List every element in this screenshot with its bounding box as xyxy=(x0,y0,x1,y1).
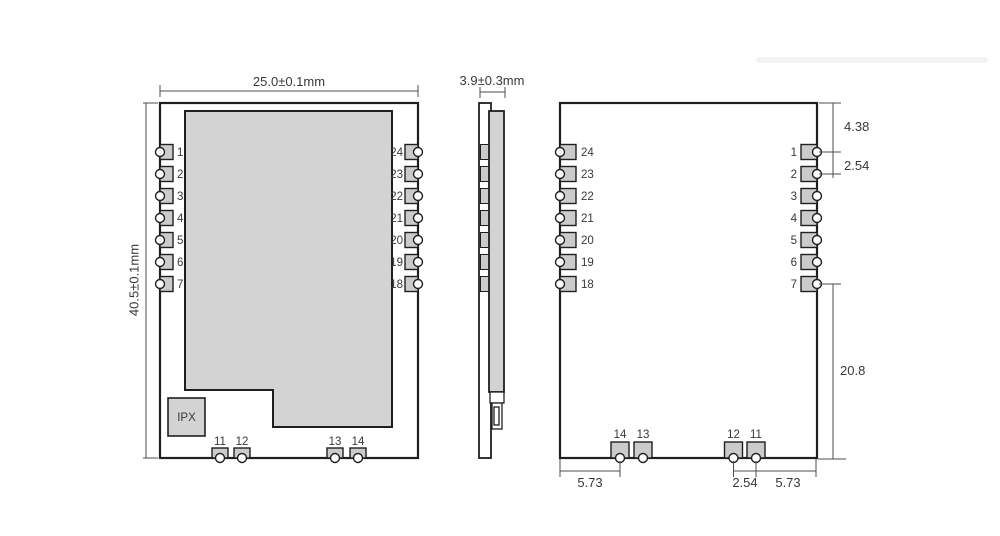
pin-label: 7 xyxy=(177,279,183,291)
pin-label: 6 xyxy=(177,257,183,269)
front-view: IPX 1234567 24232221201918 11121314 25.0… xyxy=(127,74,423,463)
module-dimension-drawing: IPX 1234567 24232221201918 11121314 25.0… xyxy=(0,0,1000,536)
front-height-dim-line xyxy=(143,103,158,458)
pin-label: 22 xyxy=(390,191,403,203)
side-thickness-dim-label: 3.9±0.3mm xyxy=(460,73,525,88)
pin-label: 5 xyxy=(177,235,183,247)
castellation-notch xyxy=(556,170,565,179)
castellation-notch xyxy=(156,148,165,157)
front-height-dim-label: 40.5±0.1mm xyxy=(127,244,142,316)
pin-label: 12 xyxy=(727,429,740,441)
pin-label: 20 xyxy=(390,235,403,247)
back-pin-pitch-dim-label: 2.54 xyxy=(844,158,869,173)
pin-label: 14 xyxy=(614,429,627,441)
pin-label: 3 xyxy=(177,191,183,203)
pin-label: 1 xyxy=(177,147,183,159)
castellation-notch xyxy=(813,192,822,201)
back-top-right-dim-lines xyxy=(819,103,841,178)
pin-label: 2 xyxy=(177,169,183,181)
castellation-notch xyxy=(556,148,565,157)
castellation-notch xyxy=(813,258,822,267)
castellation-notch xyxy=(354,454,363,463)
pin-label: 23 xyxy=(390,169,403,181)
castellation-notch xyxy=(813,236,822,245)
pin-label: 5 xyxy=(791,235,797,247)
castellation-notch xyxy=(156,280,165,289)
castellation-notch xyxy=(238,454,247,463)
pin-label: 2 xyxy=(791,169,797,181)
pin-label: 24 xyxy=(390,147,403,159)
castellation-notch xyxy=(414,280,423,289)
castellation-notch xyxy=(556,258,565,267)
castellation-notch xyxy=(556,236,565,245)
castellation-notch xyxy=(156,258,165,267)
pin-label: 20 xyxy=(581,235,594,247)
pin-label: 19 xyxy=(581,257,594,269)
castellation-notch xyxy=(556,214,565,223)
pin-label: 11 xyxy=(750,429,762,441)
pin-label: 6 xyxy=(791,257,797,269)
pin-label: 7 xyxy=(791,279,797,291)
castellation-notch xyxy=(813,214,822,223)
pin-label: 4 xyxy=(177,213,184,225)
pin-label: 13 xyxy=(329,436,342,448)
side-thickness-dim-line xyxy=(480,87,505,98)
castellation-notch xyxy=(331,454,340,463)
pin-label: 22 xyxy=(581,191,594,203)
pin-label: 24 xyxy=(581,147,594,159)
pin-label: 14 xyxy=(352,436,365,448)
back-view: 24232221201918 1234567 14131211 4.38 2.5… xyxy=(556,103,870,490)
pin-label: 18 xyxy=(390,279,403,291)
castellation-notch xyxy=(556,192,565,201)
side-view: 3.9±0.3mm xyxy=(460,73,525,458)
back-top-offset-dim-label: 4.38 xyxy=(844,119,869,134)
back-bottom-height-dim-label: 20.8 xyxy=(840,363,865,378)
castellation-notch xyxy=(156,236,165,245)
back-body-outline xyxy=(560,103,817,458)
pin-label: 13 xyxy=(637,429,650,441)
front-width-dim-label: 25.0±0.1mm xyxy=(253,74,325,89)
pin-label: 1 xyxy=(791,147,797,159)
castellation-notch xyxy=(156,214,165,223)
castellation-notch xyxy=(556,280,565,289)
castellation-notch xyxy=(216,454,225,463)
pin-label: 23 xyxy=(581,169,594,181)
front-shield-can xyxy=(185,111,392,427)
side-shield-bar xyxy=(489,111,504,392)
castellation-notch xyxy=(414,192,423,201)
pin-label: 12 xyxy=(236,436,249,448)
ipx-label: IPX xyxy=(177,412,196,424)
castellation-notch xyxy=(414,258,423,267)
pin-label: 19 xyxy=(390,257,403,269)
pin-label: 4 xyxy=(791,213,798,225)
castellation-notch xyxy=(414,214,423,223)
side-ipx-step-1 xyxy=(490,392,504,403)
back-bottom-right-margin-label: 5.73 xyxy=(775,475,800,490)
castellation-notch xyxy=(156,192,165,201)
back-bottom-left-margin-label: 5.73 xyxy=(577,475,602,490)
castellation-notch xyxy=(414,236,423,245)
castellation-notch xyxy=(156,170,165,179)
back-bottom-pin-pitch-label: 2.54 xyxy=(732,475,757,490)
castellation-notch xyxy=(639,454,648,463)
castellation-notch xyxy=(414,170,423,179)
pin-label: 18 xyxy=(581,279,594,291)
side-ipx-step-3 xyxy=(494,407,499,425)
pin-label: 3 xyxy=(791,191,797,203)
pin-label: 21 xyxy=(390,213,403,225)
faint-watermark xyxy=(756,57,988,63)
castellation-notch xyxy=(414,148,423,157)
drawing-svg: IPX 1234567 24232221201918 11121314 25.0… xyxy=(0,0,1000,536)
pin-label: 11 xyxy=(214,436,226,448)
pin-label: 21 xyxy=(581,213,594,225)
